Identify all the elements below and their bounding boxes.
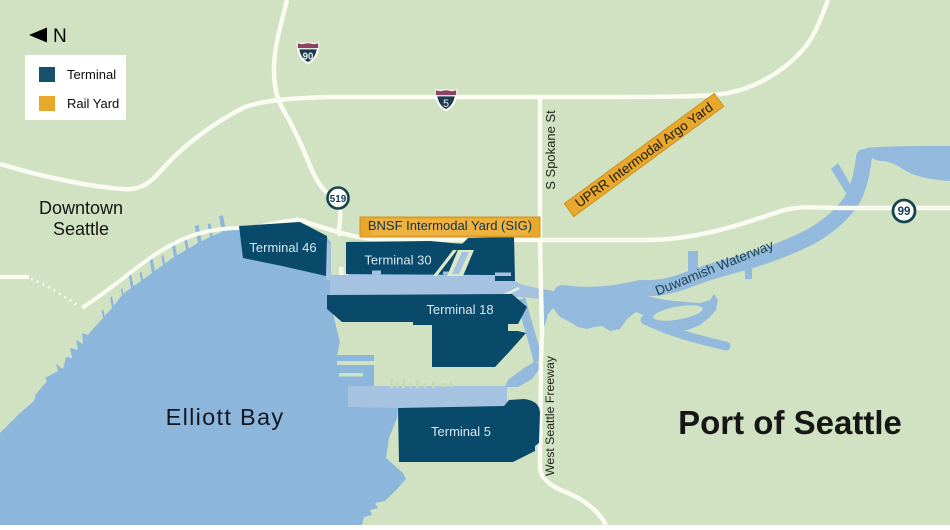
svg-text:Terminal 30: Terminal 30 (364, 253, 431, 268)
svg-text:Rail Yard: Rail Yard (67, 96, 119, 111)
svg-text:S Spokane St: S Spokane St (543, 110, 558, 190)
svg-text:Terminal 18: Terminal 18 (426, 302, 493, 317)
svg-text:Terminal 5: Terminal 5 (431, 424, 491, 439)
svg-text:Port of Seattle: Port of Seattle (678, 404, 902, 441)
svg-text:90: 90 (303, 51, 314, 62)
svg-text:West Seattle Freeway: West Seattle Freeway (543, 355, 557, 476)
svg-text:Terminal: Terminal (67, 67, 116, 82)
svg-text:99: 99 (898, 206, 911, 218)
svg-text:Seattle: Seattle (53, 219, 109, 239)
svg-text:N: N (53, 26, 67, 47)
svg-text:Downtown: Downtown (39, 198, 123, 218)
svg-text:BNSF Intermodal Yard (SIG): BNSF Intermodal Yard (SIG) (368, 218, 532, 233)
svg-text:519: 519 (330, 194, 347, 205)
svg-text:5: 5 (443, 98, 449, 110)
svg-text:Terminal 46: Terminal 46 (249, 240, 316, 255)
svg-text:Elliott Bay: Elliott Bay (166, 404, 285, 430)
